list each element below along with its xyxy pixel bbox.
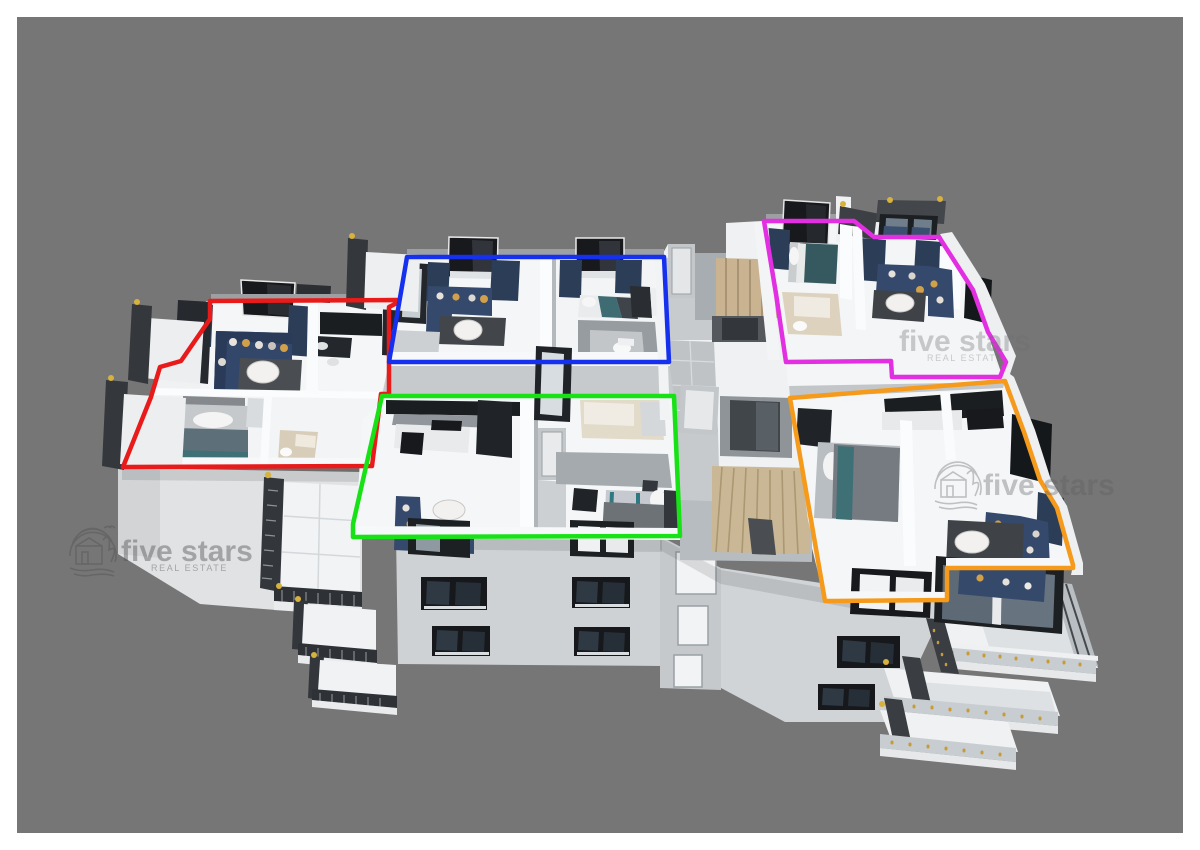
svg-text:REAL ESTATE: REAL ESTATE [151,563,228,573]
svg-text:five stars: five stars [983,469,1115,502]
svg-text:REAL ESTATE: REAL ESTATE [927,353,1004,363]
